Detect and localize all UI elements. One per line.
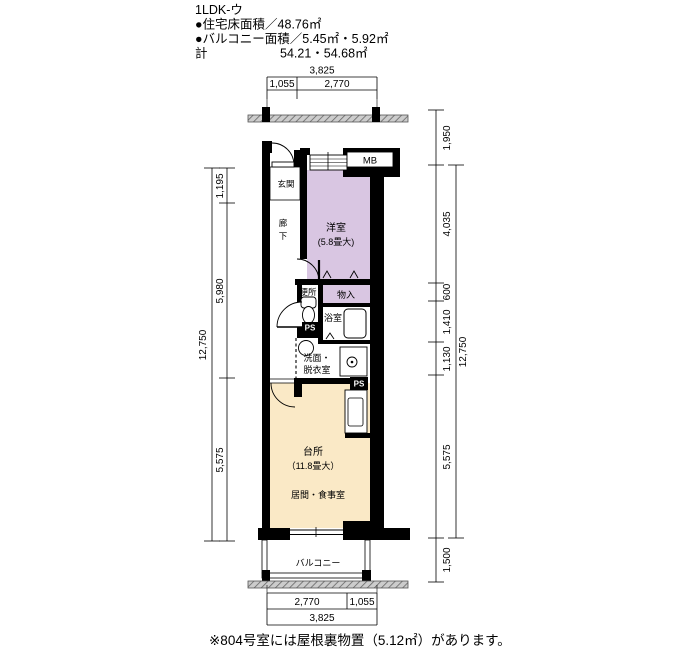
floor-plan-page: 1LDK-ウ ●住宅床面積／48.76㎡ ●バルコニー面積／5.45㎡・5.92… — [0, 0, 700, 650]
bath-door-mark — [326, 333, 334, 339]
dim-top-seg-2: 2,770 — [324, 79, 349, 90]
wall-yoshitsu-bottom — [295, 279, 370, 285]
dim-right-seg-3: 600 — [442, 283, 453, 300]
balcony-area-text: ●バルコニー面積／5.45㎡・5.92㎡ — [195, 31, 389, 46]
wall-monoire-bottom — [323, 303, 370, 307]
floor-plan-drawing: 1LDK-ウ ●住宅床面積／48.76㎡ ●バルコニー面積／5.45㎡・5.92… — [0, 0, 700, 650]
total-label: 計 — [195, 46, 208, 61]
wall-left — [262, 141, 270, 540]
dim-right-seg-2: 4,035 — [442, 211, 453, 236]
window-south — [290, 527, 343, 537]
dim-left-total: 12,750 — [198, 329, 209, 360]
wall-bottom-right — [343, 521, 384, 540]
wall-bath-left — [318, 285, 323, 344]
wall-bottom-protrusion — [384, 528, 410, 540]
floor-area-text: ●住宅床面積／48.76㎡ — [195, 17, 322, 32]
label-yoshitsu-size: (5.8畳大) — [318, 236, 355, 247]
total-value: 54.21・54.68㎡ — [280, 47, 368, 61]
wall-yoshitsu-left — [300, 205, 307, 259]
label-monoire: 物入 — [337, 289, 355, 300]
bottom-dimensions: 2,770 1,055 3,825 — [267, 585, 377, 625]
dim-right-total: 12,750 — [458, 336, 469, 367]
dim-bottom-seg-2: 1,055 — [349, 597, 374, 608]
label-rouka-1: 廊 — [279, 218, 288, 228]
dim-top-total: 3,825 — [309, 66, 334, 77]
upper-boundary-wall — [248, 107, 408, 122]
label-balcony: バルコニー — [296, 558, 341, 568]
label-daidokoro: 台所 — [303, 445, 323, 458]
wall-bottom-left — [258, 528, 290, 540]
dim-right-seg-7: 1,500 — [442, 547, 453, 572]
label-daidokoro-size: （11.8畳大） — [287, 460, 340, 471]
right-dimensions: 1,950 4,035 600 1,410 1,130 5,575 1,500 … — [428, 110, 469, 582]
top-dimensions: 3,825 1,055 2,770 — [267, 66, 377, 113]
label-ima-shokuji: 居間・食事室 — [291, 489, 345, 500]
label-senmen-1: 洗面・ — [303, 352, 330, 363]
lower-boundary-wall — [248, 581, 408, 588]
bathtub-icon — [344, 309, 366, 338]
label-yokushitsu: 浴室 — [324, 312, 342, 323]
plan-type-title: 1LDK-ウ — [195, 3, 243, 17]
dim-right-seg-5: 1,130 — [442, 346, 453, 371]
label-benjo: 便所 — [299, 287, 317, 297]
toilet-door — [277, 302, 302, 327]
dim-bottom-seg-1: 2,770 — [294, 597, 319, 608]
label-ps-toilet: PS — [305, 324, 316, 333]
wall-counter-stub — [345, 433, 384, 438]
dim-right-seg-1: 1,950 — [442, 125, 453, 150]
wall-genkan-right — [300, 148, 307, 205]
wall-top-infill — [302, 148, 310, 155]
dim-left-seg-3: 5,575 — [215, 447, 226, 472]
dim-right-seg-4: 1,410 — [442, 309, 453, 334]
toilet-icon — [301, 297, 316, 324]
wall-right — [370, 177, 384, 528]
dim-top-seg-1: 1,055 — [269, 79, 294, 90]
washing-machine-pan-icon — [340, 347, 367, 376]
wall-top-left-corner — [262, 141, 272, 153]
label-senmen-2: 脱衣室 — [303, 364, 330, 375]
entrance-door — [272, 143, 294, 167]
label-yoshitsu: 洋室 — [326, 221, 346, 234]
wall-kitchen-top — [302, 378, 350, 384]
wall-bath-bottom — [318, 340, 370, 344]
dim-left-seg-1: 1,195 — [215, 173, 226, 198]
header: 1LDK-ウ ●住宅床面積／48.76㎡ ●バルコニー面積／5.45㎡・5.92… — [195, 3, 389, 61]
footnote: ※804号室には屋根裏物置（5.12㎡）があります。 — [209, 632, 511, 648]
kitchen-counter-icon — [345, 390, 367, 433]
wall-kitchen-door-stub — [294, 378, 302, 397]
label-rouka-2: 下 — [279, 231, 288, 241]
dim-left-seg-2: 5,980 — [215, 278, 226, 303]
dim-right-seg-6: 5,575 — [442, 444, 453, 469]
left-dimensions: 12,750 1,195 5,980 5,575 — [198, 168, 235, 541]
label-ps-kitchen: PS — [354, 380, 365, 389]
label-mb: MB — [363, 156, 377, 167]
dim-bottom-total: 3,825 — [309, 613, 334, 624]
window-north — [310, 152, 347, 170]
label-genkan: 玄関 — [277, 179, 294, 189]
